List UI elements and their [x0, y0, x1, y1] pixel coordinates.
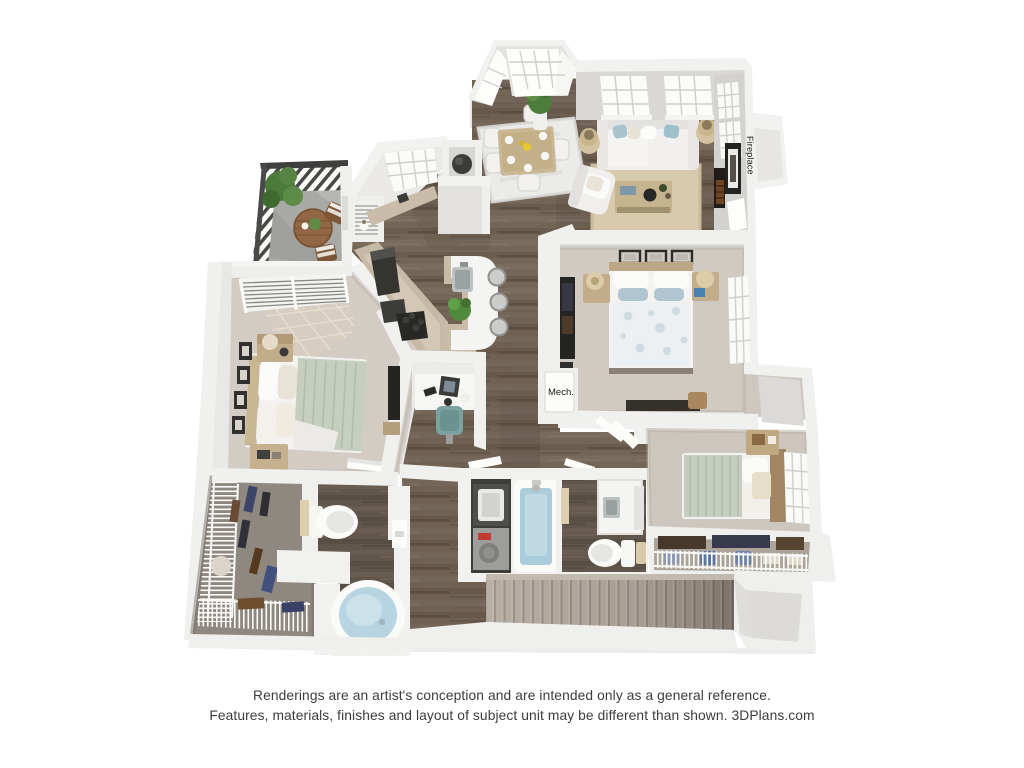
svg-text:Mech.: Mech. — [548, 387, 574, 398]
svg-text:Fireplace: Fireplace — [745, 136, 756, 175]
